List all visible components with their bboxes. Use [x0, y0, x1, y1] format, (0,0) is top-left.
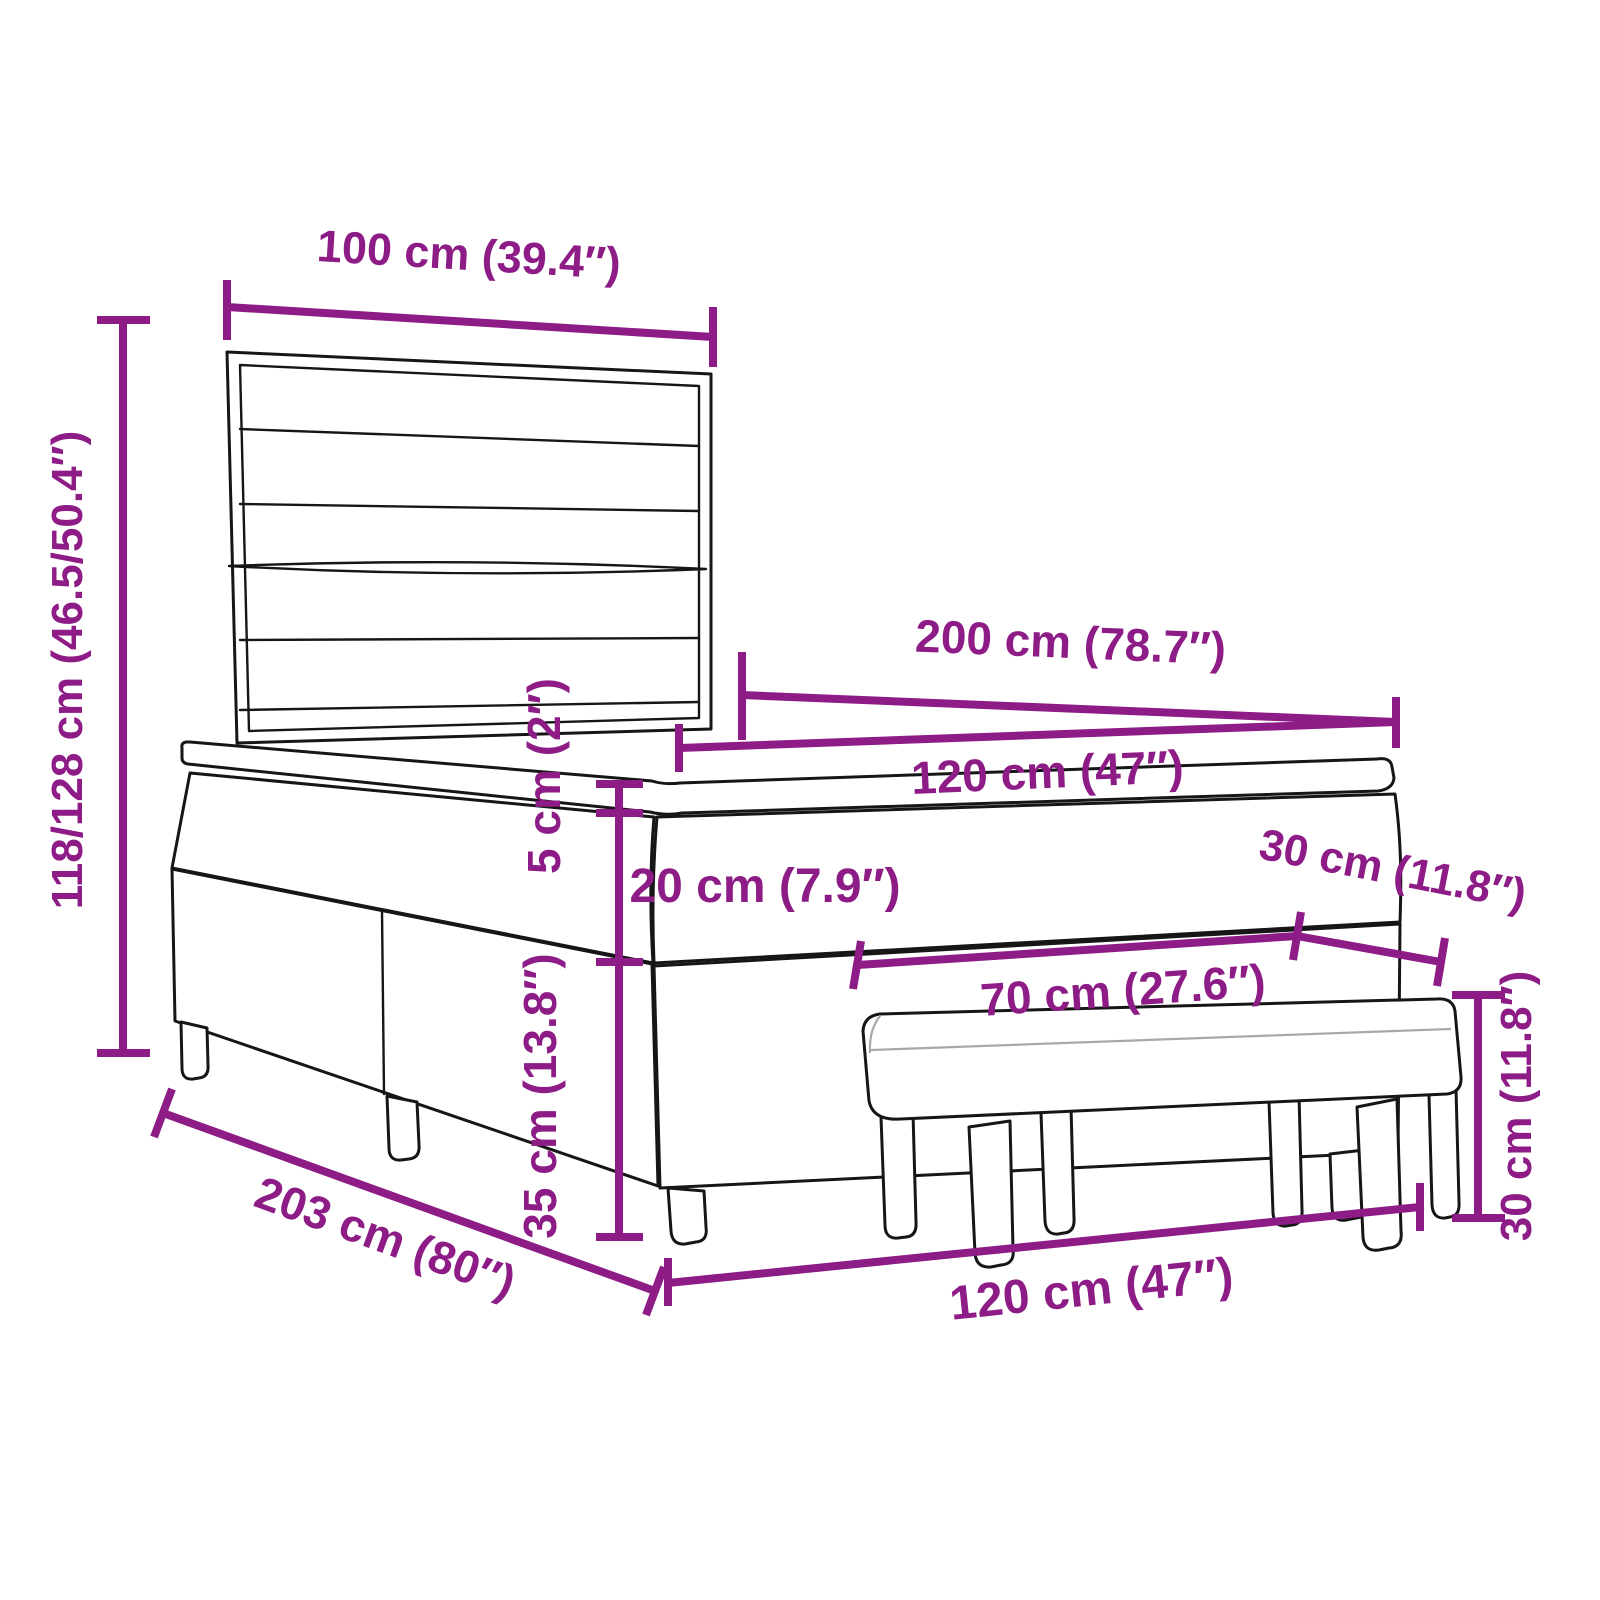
dimension-label-mattress-height: 20 cm (7.9″): [629, 860, 900, 913]
bed-dimension-drawing: 100 cm (39.4″) 118/128 cm (46.5/50.4″) 2…: [0, 0, 1600, 1600]
bench-leg-right: [1429, 1089, 1459, 1218]
dimension-label-frame-height: 35 cm (13.8″): [514, 953, 566, 1238]
bed-leg-front-middle: [387, 1096, 419, 1160]
bench-leg-front-right: [1357, 1099, 1401, 1250]
bench-leg-back-middle: [1041, 1107, 1074, 1234]
dimension-label-total-height: 118/128 cm (46.5/50.4″): [43, 431, 92, 910]
bench-leg-back-right: [1269, 1095, 1302, 1226]
dimension-label-bench-height: 30 cm (11.8″): [1492, 971, 1541, 1242]
bed-leg-front-left: [181, 1022, 208, 1079]
headboard: [227, 352, 711, 743]
bed-leg-front-corner: [668, 1188, 706, 1244]
bench-leg-back-left: [881, 1113, 916, 1238]
dimension-diagram: 100 cm (39.4″) 118/128 cm (46.5/50.4″) 2…: [0, 0, 1600, 1600]
dimension-label-topper-height: 5 cm (2″): [518, 678, 570, 874]
